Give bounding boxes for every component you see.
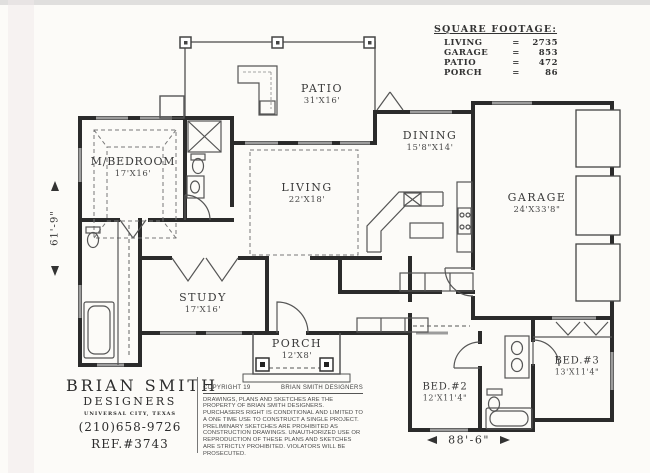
patio-counter (238, 66, 277, 115)
arrow-left-icon (427, 436, 437, 444)
master-closet-door (120, 220, 146, 238)
stove-symbol (458, 208, 471, 234)
patio-outline (185, 42, 375, 141)
copyright-header: COPYRIGHT 19 BRIAN SMITH DESIGNERS (203, 385, 363, 394)
toilet-symbol (193, 159, 204, 174)
title-block: BRIAN SMITH DESIGNERS UNIVERSAL CITY, TE… (66, 376, 194, 451)
garage-doors (576, 110, 620, 301)
room-label-master-bedroom: M/BEDROOM 17'X16' (91, 155, 176, 179)
arrow-down-icon (51, 266, 59, 276)
study-bifold-doors (172, 258, 238, 281)
sqft-row-patio: PATIO = 472 (434, 58, 566, 68)
copyright-label: COPYRIGHT 19 (203, 385, 251, 391)
copyright-block: COPYRIGHT 19 BRIAN SMITH DESIGNERS DRAWI… (203, 385, 363, 458)
bed3-closet-doors (556, 322, 608, 335)
dining-patio-door (377, 92, 403, 110)
utility-counter (357, 318, 428, 332)
toilet-symbol (88, 233, 99, 248)
square-footage-table: SQUARE FOOTAGE: LIVING = 2735 GARAGE = 8… (434, 24, 566, 78)
sqft-row-porch: PORCH = 86 (434, 68, 566, 78)
title-block-divider (197, 377, 198, 453)
room-label-garage: GARAGE 24'X33'8" (508, 191, 567, 215)
toilet-symbol (489, 397, 500, 411)
room-label-bed3: BED.#3 13'X11'4" (554, 356, 599, 377)
master-bath-door (185, 195, 210, 220)
sqft-row-garage: GARAGE = 853 (434, 48, 566, 58)
overall-depth-dimension: 61'-9" (50, 210, 61, 246)
designer-name: BRIAN SMITH (66, 376, 194, 395)
room-label-study: STUDY 17'X16' (179, 291, 227, 315)
front-door (277, 302, 308, 333)
room-label-porch: PORCH 12'X8' (272, 337, 322, 361)
room-label-living: LIVING 22'X18' (281, 181, 332, 205)
floor-plan-sheet: SQUARE FOOTAGE: LIVING = 2735 GARAGE = 8… (0, 0, 650, 473)
sqft-row-living: LIVING = 2735 (434, 38, 566, 48)
scan-edge-top (0, 0, 650, 5)
room-label-patio: PATIO 31'X16' (301, 82, 343, 106)
designer-phone: (210)658-9726 (66, 420, 194, 434)
bed2-door (454, 342, 480, 368)
arrow-right-icon (500, 436, 510, 444)
fireplace (160, 96, 184, 118)
copyright-body: DRAWINGS, PLANS AND SKETCHES ARE THE PRO… (203, 397, 363, 458)
overall-width-dimension: 88'-6" (448, 434, 490, 447)
designer-subtitle: DESIGNERS (66, 395, 194, 408)
copyright-owner: BRIAN SMITH DESIGNERS (281, 385, 363, 391)
vanity-symbol (187, 176, 204, 198)
kitchen-island (410, 223, 443, 238)
room-label-bed2: BED.#2 12'X11'4" (422, 382, 467, 403)
plan-reference-number: REF.#3743 (66, 437, 194, 451)
square-footage-title: SQUARE FOOTAGE: (434, 24, 566, 35)
arrow-up-icon (51, 181, 59, 191)
bathroom-fixtures-right (413, 326, 612, 429)
room-label-dining: DINING 15'8"X14' (403, 129, 458, 153)
designer-location: UNIVERSAL CITY, TEXAS (66, 411, 194, 417)
scan-edge-left (8, 0, 34, 473)
